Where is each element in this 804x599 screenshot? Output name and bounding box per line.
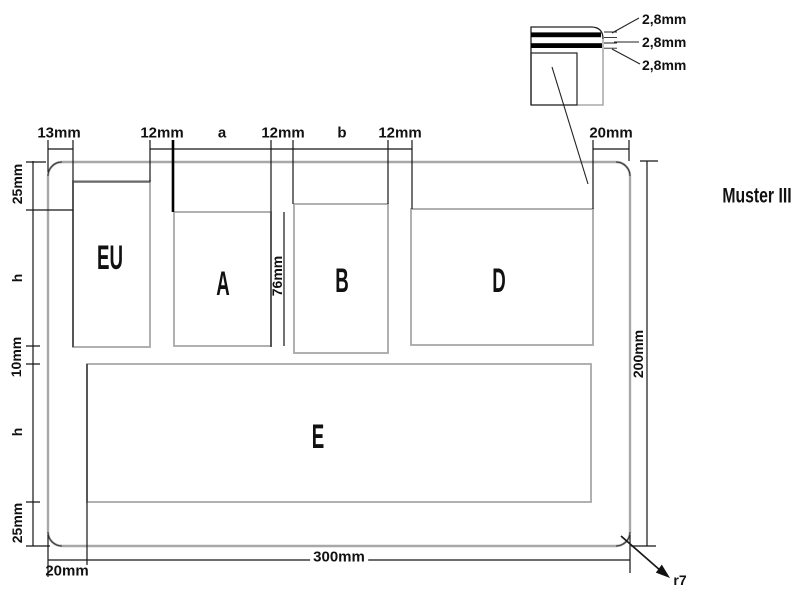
dim-label-top-margin: 25mm [10,164,24,204]
corner-mark-tr [616,162,630,176]
dim-label-gap2: 12mm [261,126,304,141]
inset-outline-dark [531,27,603,105]
inset-inner-box [531,53,577,105]
region-label-b: B [335,264,349,298]
inset-leader-lines [612,18,640,64]
region-label-e: E [312,420,324,454]
dim-label-20mm-bottom: 20mm [45,564,88,579]
region-label-d: D [492,264,506,298]
dim-label-200mm: 200mm [631,330,645,378]
region-label-eu: EU [97,241,123,275]
drawing-title: Muster III [722,186,791,207]
dim-label-gap1: 12mm [140,126,183,141]
inset-outline-gray [531,39,603,105]
dim-label-corner-radius: r7 [673,573,686,587]
corner-mark-bl [48,532,62,546]
region-label-a: A [216,267,230,301]
drawing-lines [0,0,804,599]
layer-thickness-label-3: 2,8mm [642,58,686,72]
dim-label-gap3: 12mm [378,126,421,141]
plate-outline [48,162,630,546]
dim-label-300mm: 300mm [310,550,368,565]
corner-mark-tl [48,162,62,176]
dim-label-76mm: 76mm [270,256,284,296]
inset-layer-bar-1 [531,32,601,37]
r7-leader-line [621,536,661,571]
r7-arrowhead-icon [656,565,670,578]
inset-layer-bar-2 [531,43,602,48]
dim-label-row-gap: 10mm [9,337,23,377]
inset-dim-ticks [604,32,617,48]
dim-label-row1-height: h [10,274,24,283]
dim-label-row2-height: h [10,428,24,437]
top-dim-extensions [48,140,629,347]
corner-marks [48,162,630,546]
region-boxes [73,181,593,502]
region-e-box [87,364,591,502]
dim-label-right-margin: 20mm [589,126,632,141]
dim-label-col-b: b [337,126,346,141]
corner-mark-br [616,532,630,546]
dim-label-bottom-margin: 25mm [10,503,24,543]
detail-inset [531,18,640,184]
dim-label-left-margin: 13mm [37,126,80,141]
dimension-lines [26,140,658,577]
inset-pointer-line [552,67,588,184]
r7-callout [621,536,670,578]
layer-thickness-label-1: 2,8mm [642,12,686,26]
layer-thickness-label-2: 2,8mm [642,35,686,49]
technical-drawing: Muster III 2,8mm 2,8mm 2,8mm 13mm 12mm a… [0,0,804,599]
dim-label-col-a: a [218,126,226,141]
